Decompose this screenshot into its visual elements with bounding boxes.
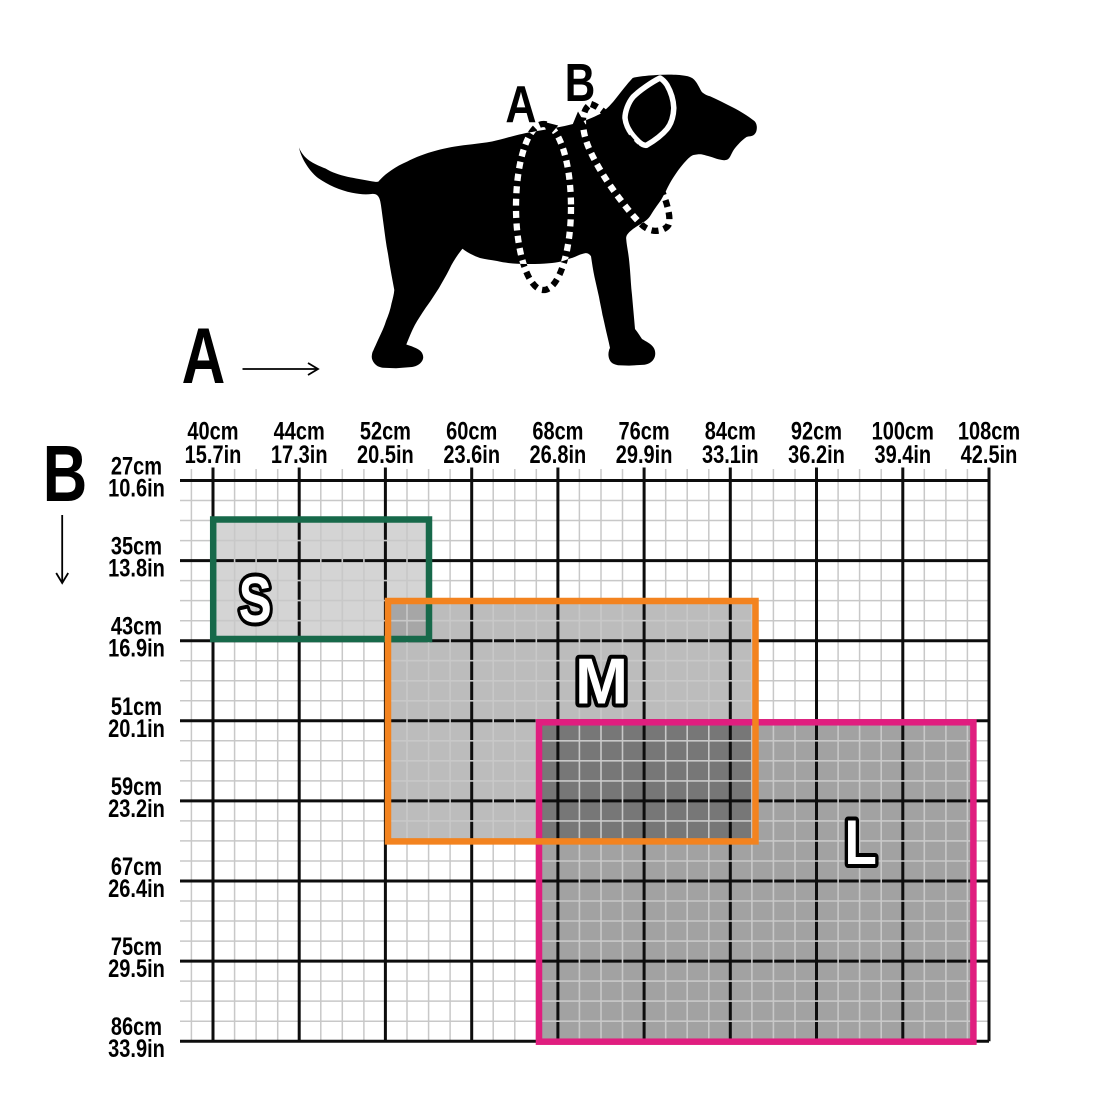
svg-text:A: A bbox=[182, 312, 226, 399]
svg-text:S: S bbox=[239, 564, 272, 636]
svg-text:20.1in: 20.1in bbox=[108, 715, 165, 743]
svg-text:10.6in: 10.6in bbox=[108, 474, 165, 502]
svg-text:33.1in: 33.1in bbox=[702, 441, 759, 469]
svg-text:13.8in: 13.8in bbox=[108, 555, 165, 583]
svg-text:33.9in: 33.9in bbox=[108, 1035, 165, 1063]
svg-text:23.2in: 23.2in bbox=[108, 795, 165, 823]
svg-text:26.8in: 26.8in bbox=[530, 441, 587, 469]
svg-text:29.9in: 29.9in bbox=[616, 441, 673, 469]
svg-text:L: L bbox=[845, 808, 877, 878]
svg-text:15.7in: 15.7in bbox=[185, 441, 242, 469]
svg-text:36.2in: 36.2in bbox=[788, 441, 845, 469]
svg-text:B: B bbox=[43, 429, 87, 519]
svg-text:A: A bbox=[505, 76, 536, 134]
svg-text:B: B bbox=[565, 53, 596, 113]
svg-text:16.9in: 16.9in bbox=[108, 635, 165, 663]
svg-text:29.5in: 29.5in bbox=[108, 955, 165, 983]
svg-text:17.3in: 17.3in bbox=[271, 441, 328, 469]
svg-text:23.6in: 23.6in bbox=[443, 441, 500, 469]
svg-text:20.5in: 20.5in bbox=[357, 441, 414, 469]
svg-text:M: M bbox=[575, 645, 628, 718]
svg-text:42.5in: 42.5in bbox=[961, 441, 1018, 469]
svg-text:26.4in: 26.4in bbox=[108, 875, 165, 903]
svg-text:39.4in: 39.4in bbox=[874, 441, 931, 469]
